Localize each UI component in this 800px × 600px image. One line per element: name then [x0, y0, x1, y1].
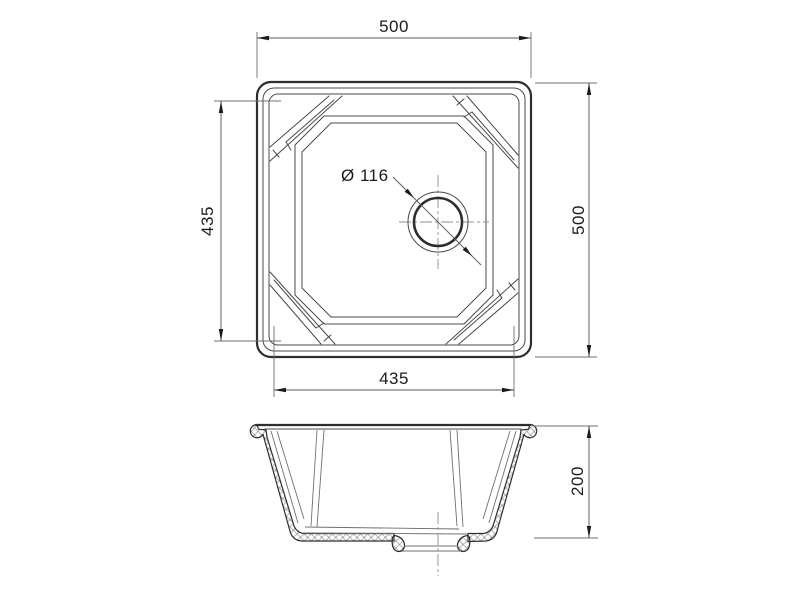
dimension-overall-width: 500: [257, 17, 531, 78]
section-drain-boss-right: [458, 536, 470, 552]
arrow-bottom: [587, 345, 591, 357]
bowl-fillet-inner: [302, 123, 486, 317]
dim-bowl-height-label: 200: [568, 466, 587, 496]
plan-inner-rim-line-2: [269, 94, 519, 345]
dimension-overall-depth: 500: [535, 83, 597, 357]
arrow-right: [519, 36, 531, 40]
dim-overall-depth-label: 500: [569, 205, 588, 235]
dim-bowl-width-label: 435: [379, 369, 409, 388]
arrow-left: [257, 36, 269, 40]
dim-bowl-depth-label: 435: [198, 206, 217, 236]
section-drain-boss-left: [392, 536, 404, 552]
arrow-top: [587, 83, 591, 95]
section-view: [250, 425, 536, 577]
section-right-wall-cut: [468, 425, 537, 542]
arrow-right: [502, 388, 514, 392]
plan-view: Ø 116: [257, 82, 531, 357]
dim-overall-width-label: 500: [379, 17, 409, 36]
sink-technical-drawing: Ø 116 500 500 435 435: [0, 0, 800, 600]
bowl-fillet-outer: [295, 116, 493, 324]
arrow-top: [587, 426, 591, 438]
drain-hole: Ø 116: [341, 166, 489, 269]
technical-drawing-page: Ø 116 500 500 435 435: [0, 0, 800, 600]
arrow-bottom: [219, 329, 223, 341]
corner-wedge-bottom-right: [446, 279, 518, 344]
corner-wedge-top-left: [270, 96, 342, 161]
arrow-left: [274, 388, 286, 392]
dimension-bowl-height: 200: [534, 426, 598, 538]
arrow-top: [219, 101, 223, 113]
section-interior-lines: [271, 430, 516, 551]
dim-drain-diameter-label: Ø 116: [341, 166, 389, 185]
arrow-bottom: [587, 526, 591, 538]
dimension-bowl-width: 435: [274, 326, 514, 397]
section-left-wall-cut: [250, 425, 394, 542]
